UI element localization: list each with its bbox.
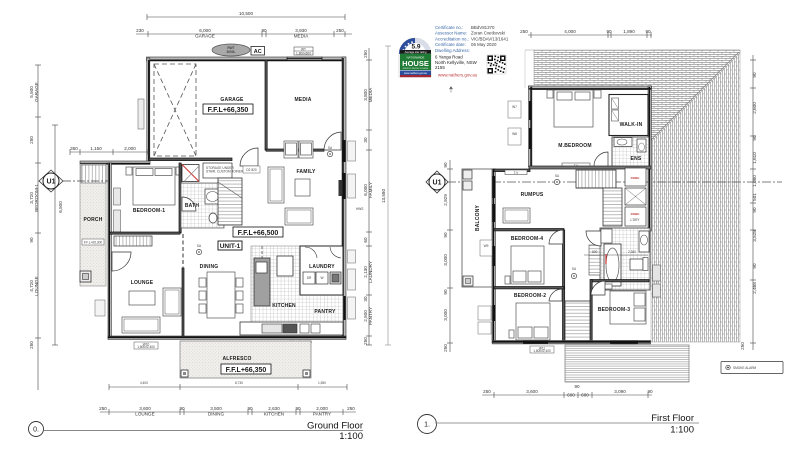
- svg-text:M.BEDROOM: M.BEDROOM: [558, 143, 591, 149]
- svg-text:90: 90: [606, 29, 612, 34]
- svg-text:MEDIA: MEDIA: [294, 97, 311, 103]
- svg-text:2,380: 2,380: [628, 250, 636, 254]
- svg-text:5.9: 5.9: [411, 44, 420, 51]
- svg-text:250: 250: [363, 50, 368, 58]
- svg-text:6 Yanga Road: 6 Yanga Road: [435, 54, 463, 59]
- svg-text:90: 90: [261, 28, 267, 33]
- svg-text:F.F.L+66,350: F.F.L+66,350: [208, 107, 249, 114]
- svg-text:1,800x2,400: 1,800x2,400: [137, 345, 155, 349]
- svg-text:LOUNGE: LOUNGE: [135, 412, 154, 417]
- svg-text:250: 250: [483, 389, 491, 394]
- svg-text:HWS: HWS: [356, 207, 363, 211]
- svg-text:LOUNGE: LOUNGE: [131, 280, 154, 286]
- svg-text:LAUNDRY: LAUNDRY: [309, 264, 335, 270]
- svg-text:D2 820: D2 820: [246, 168, 257, 172]
- svg-text:2,630: 2,630: [268, 406, 280, 411]
- svg-text:BALCONY: BALCONY: [475, 204, 481, 231]
- svg-text:F.F.L+66,300: F.F.L+66,300: [84, 240, 103, 244]
- svg-text:250: 250: [740, 342, 745, 350]
- svg-text:WALK-IN: WALK-IN: [620, 122, 643, 128]
- svg-text:HOUSE: HOUSE: [402, 59, 429, 68]
- svg-text:1,890: 1,890: [623, 29, 635, 34]
- svg-text:30: 30: [363, 137, 368, 143]
- svg-text:4,000: 4,000: [564, 29, 576, 34]
- svg-text:PANTRY: PANTRY: [313, 412, 331, 417]
- svg-text:230: 230: [136, 28, 144, 33]
- svg-text:KITCHEN: KITCHEN: [272, 303, 296, 309]
- svg-text:Accreditation no.:: Accreditation no.:: [435, 36, 469, 41]
- svg-text:LAUNDRY: LAUNDRY: [368, 261, 373, 283]
- svg-text:L'DRY: L'DRY: [630, 218, 640, 222]
- svg-text:RUMPUS: RUMPUS: [521, 192, 544, 198]
- svg-text:30: 30: [363, 296, 368, 302]
- svg-text:90: 90: [752, 135, 757, 141]
- svg-text:ALFRESCO: ALFRESCO: [222, 356, 251, 362]
- svg-text:ENS: ENS: [631, 156, 642, 162]
- svg-text:W8: W8: [512, 132, 517, 136]
- svg-text:250: 250: [29, 136, 34, 144]
- svg-text:KITCHEN: KITCHEN: [264, 412, 284, 417]
- svg-text:13,580: 13,580: [381, 189, 386, 203]
- svg-text:SMOKE ALARM: SMOKE ALARM: [733, 366, 757, 370]
- svg-text:Certificate date:: Certificate date:: [435, 42, 466, 47]
- svg-text:3,528: 3,528: [752, 230, 757, 242]
- svg-text:Average star rating: Average star rating: [405, 50, 427, 54]
- svg-text:BEDROOM-1: BEDROOM-1: [34, 184, 39, 212]
- svg-text:PANTRY: PANTRY: [368, 307, 373, 325]
- svg-text:Assessor Name:: Assessor Name:: [435, 31, 467, 36]
- svg-text:BATH: BATH: [185, 203, 200, 209]
- svg-text:STAIR. CUSTOM JOINERY: STAIR. CUSTOM JOINERY: [206, 169, 246, 173]
- svg-text:250: 250: [520, 29, 528, 34]
- svg-text:3,930: 3,930: [295, 28, 307, 33]
- svg-text:3,000: 3,000: [443, 309, 448, 321]
- svg-text:1,150: 1,150: [90, 146, 102, 151]
- svg-text:2,468: 2,468: [752, 282, 757, 294]
- svg-text:FAMILY: FAMILY: [296, 169, 316, 175]
- svg-text:ROBE: ROBE: [631, 176, 640, 180]
- svg-text:3,600: 3,600: [139, 406, 151, 411]
- svg-text:250: 250: [336, 28, 344, 33]
- svg-text:90: 90: [443, 162, 448, 168]
- svg-text:3,000: 3,000: [443, 254, 448, 266]
- svg-text:4,400: 4,400: [140, 381, 148, 385]
- svg-text:06 May 2020: 06 May 2020: [471, 42, 497, 47]
- svg-text:1,800x600: 1,800x600: [296, 52, 311, 56]
- svg-text:250: 250: [363, 337, 368, 345]
- svg-text:90: 90: [647, 389, 653, 394]
- svg-text:90: 90: [752, 207, 757, 213]
- svg-text:North Kellyville, NSW: North Kellyville, NSW: [435, 60, 478, 65]
- svg-text:Ground Floor: Ground Floor: [307, 421, 363, 432]
- svg-text:1:100: 1:100: [670, 425, 694, 436]
- svg-text:250: 250: [99, 406, 107, 411]
- svg-text:FAMILY: FAMILY: [368, 182, 373, 198]
- svg-text:DR: DR: [307, 276, 312, 280]
- svg-text:1,080: 1,080: [752, 175, 757, 187]
- svg-text:First Floor: First Floor: [651, 413, 694, 424]
- svg-text:W9: W9: [484, 244, 489, 248]
- svg-text:2,000: 2,000: [316, 406, 328, 411]
- svg-text:90: 90: [752, 72, 757, 78]
- svg-text:90: 90: [752, 263, 757, 269]
- svg-text:1.: 1.: [424, 422, 430, 429]
- svg-text:10,500: 10,500: [239, 11, 253, 16]
- svg-text:350: 350: [70, 146, 78, 151]
- svg-text:ENERGY RATING SCHEME: ENERGY RATING SCHEME: [403, 67, 429, 70]
- svg-text:www.nathers.gov.au: www.nathers.gov.au: [404, 71, 428, 75]
- svg-text:Certificate no.:: Certificate no.:: [435, 25, 463, 30]
- svg-text:90: 90: [574, 384, 580, 389]
- svg-text:1:100: 1:100: [339, 431, 363, 442]
- svg-text:2155: 2155: [435, 65, 445, 70]
- svg-text:Zoran Cvetkovski: Zoran Cvetkovski: [471, 31, 505, 36]
- svg-text:U1: U1: [47, 179, 56, 186]
- svg-text:600: 600: [592, 250, 598, 254]
- svg-text:BEDROOM-4: BEDROOM-4: [511, 236, 543, 242]
- svg-text:GARAGE: GARAGE: [195, 34, 215, 39]
- svg-text:BEDROOM-1: BEDROOM-1: [133, 208, 165, 214]
- svg-text:MEDIA: MEDIA: [294, 34, 309, 39]
- svg-text:90: 90: [295, 406, 301, 411]
- svg-text:PORCH: PORCH: [83, 217, 102, 223]
- svg-text:3,500: 3,500: [210, 406, 222, 411]
- svg-text:60: 60: [363, 237, 368, 243]
- svg-text:UNIT-1: UNIT-1: [220, 243, 241, 250]
- svg-text:0.: 0.: [33, 427, 39, 434]
- svg-text:501: 501: [752, 193, 757, 201]
- svg-text:90: 90: [179, 406, 185, 411]
- svg-text:250: 250: [29, 341, 34, 349]
- svg-text:250: 250: [347, 406, 355, 411]
- svg-text:Dwelling Address:: Dwelling Address:: [435, 48, 470, 53]
- svg-text:GARAGE: GARAGE: [220, 97, 244, 103]
- svg-text:U1: U1: [433, 180, 442, 187]
- svg-text:6,500: 6,500: [58, 201, 63, 213]
- svg-text:W: W: [320, 276, 323, 280]
- svg-text:2,600: 2,600: [752, 102, 757, 114]
- svg-text:www.nathers.gov.au: www.nathers.gov.au: [438, 73, 478, 78]
- svg-text:MEDIA: MEDIA: [368, 87, 373, 102]
- svg-text:AC: AC: [254, 49, 262, 55]
- svg-text:1,610: 1,610: [752, 152, 757, 164]
- svg-text:DINING: DINING: [200, 264, 219, 270]
- svg-text:3,090: 3,090: [614, 389, 626, 394]
- svg-text:2,000: 2,000: [124, 146, 136, 151]
- svg-text:ROBE: ROBE: [631, 212, 640, 216]
- svg-text:GARAGE: GARAGE: [34, 82, 39, 102]
- svg-text:LOUNGE: LOUNGE: [34, 276, 39, 295]
- svg-text:600: 600: [567, 393, 575, 398]
- svg-text:2,929: 2,929: [443, 194, 448, 206]
- svg-text:1,550: 1,550: [318, 381, 326, 385]
- svg-text:3000L: 3000L: [226, 50, 235, 54]
- svg-text:BEDROOM-3: BEDROOM-3: [598, 307, 630, 313]
- svg-text:VIC/BDAV/13/1641: VIC/BDAV/13/1641: [471, 36, 509, 41]
- svg-text:8,730: 8,730: [235, 381, 243, 385]
- svg-text:90: 90: [645, 29, 651, 34]
- svg-text:90: 90: [29, 237, 34, 243]
- svg-text:BEDROOM-2: BEDROOM-2: [514, 293, 546, 299]
- svg-text:6,000: 6,000: [199, 28, 211, 33]
- svg-text:W7: W7: [512, 105, 517, 109]
- svg-text:3,600: 3,600: [526, 389, 538, 394]
- svg-text:90: 90: [247, 406, 253, 411]
- svg-text:600: 600: [581, 393, 589, 398]
- svg-text:1,800x2,400: 1,800x2,400: [533, 349, 551, 353]
- svg-text:90: 90: [443, 232, 448, 238]
- svg-text:90: 90: [443, 289, 448, 295]
- svg-text:BBdV81370: BBdV81370: [471, 25, 495, 30]
- svg-text:DINING: DINING: [208, 412, 225, 417]
- svg-text:250: 250: [443, 344, 448, 352]
- svg-text:F.F.L+66,350: F.F.L+66,350: [226, 367, 267, 374]
- svg-text:PANTRY: PANTRY: [314, 309, 336, 315]
- svg-text:F.F.L+66,500: F.F.L+66,500: [238, 230, 279, 237]
